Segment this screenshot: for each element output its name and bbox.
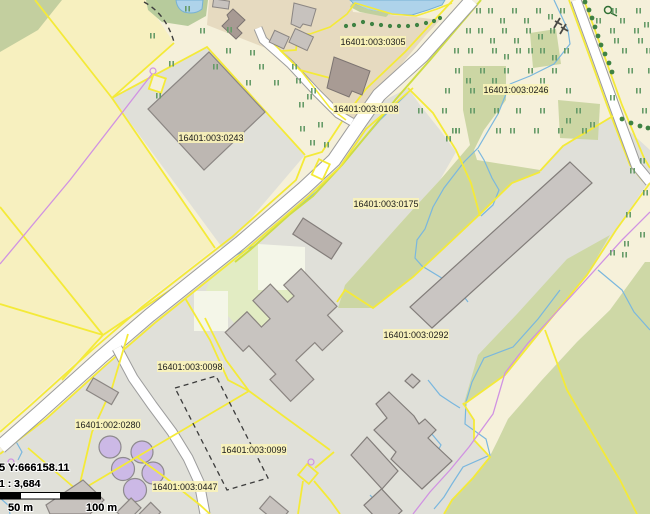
svg-text:16401:003:0447: 16401:003:0447 xyxy=(152,482,217,492)
svg-text:16401:003:0099: 16401:003:0099 xyxy=(221,445,286,455)
svg-text:50 m: 50 m xyxy=(8,502,33,514)
svg-text:16401:003:0246: 16401:003:0246 xyxy=(483,85,548,95)
svg-text:5 Y:666158.11: 5 Y:666158.11 xyxy=(0,462,70,474)
svg-text:16401:003:0292: 16401:003:0292 xyxy=(383,330,448,340)
svg-text:16401:003:0305: 16401:003:0305 xyxy=(340,37,405,47)
svg-text:16401:003:0243: 16401:003:0243 xyxy=(178,133,243,143)
svg-text:100 m: 100 m xyxy=(86,502,117,514)
svg-text:16401:003:0098: 16401:003:0098 xyxy=(157,362,222,372)
svg-text:16401:003:0175: 16401:003:0175 xyxy=(353,199,418,209)
svg-text:1 : 3,684: 1 : 3,684 xyxy=(0,478,41,490)
svg-text:16401:002:0280: 16401:002:0280 xyxy=(75,420,140,430)
svg-text:16401:003:0108: 16401:003:0108 xyxy=(333,104,398,114)
